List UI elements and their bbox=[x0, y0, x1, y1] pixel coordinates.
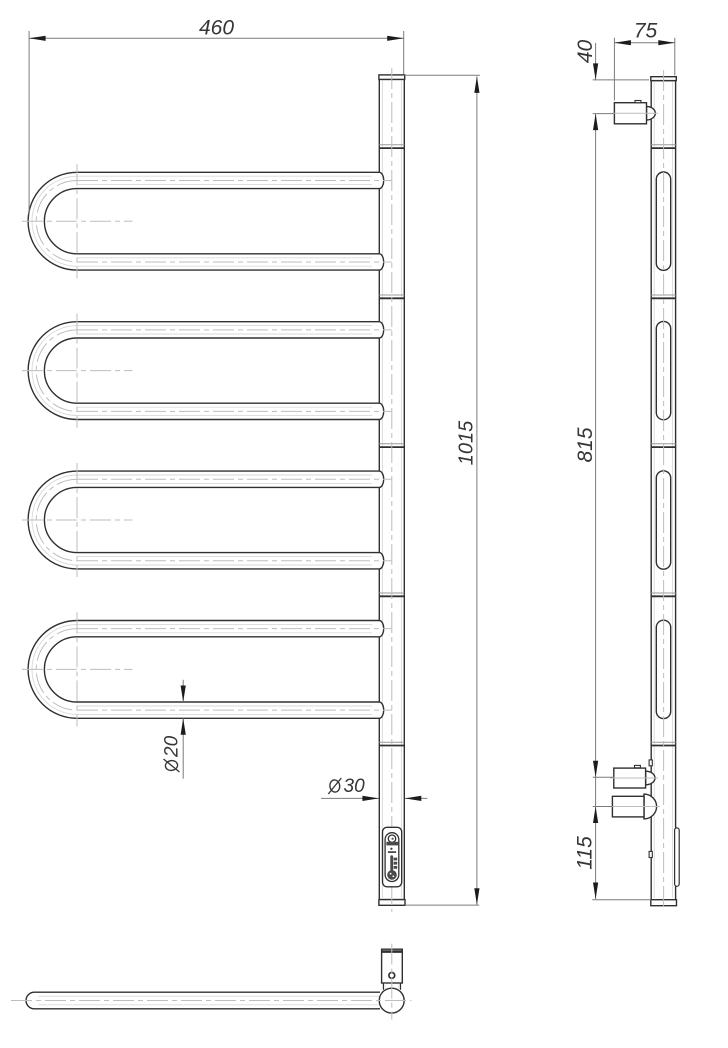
svg-text:815: 815 bbox=[574, 427, 597, 462]
svg-text:40: 40 bbox=[574, 40, 597, 64]
svg-text:20: 20 bbox=[162, 735, 183, 758]
svg-text:75: 75 bbox=[634, 20, 658, 43]
svg-text:1015: 1015 bbox=[456, 420, 478, 465]
svg-text:115: 115 bbox=[574, 836, 597, 870]
svg-text:30: 30 bbox=[344, 776, 366, 797]
svg-text:460: 460 bbox=[199, 17, 234, 40]
